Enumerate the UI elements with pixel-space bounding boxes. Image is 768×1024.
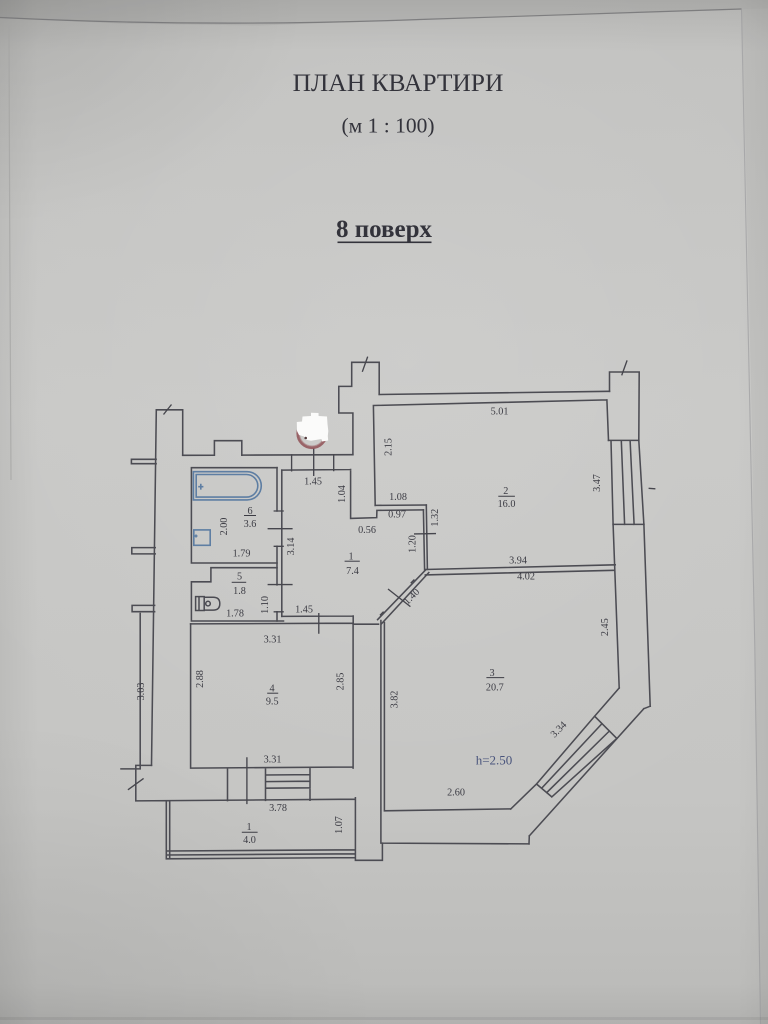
svg-text:1.79: 1.79 xyxy=(233,549,251,560)
svg-text:1.45: 1.45 xyxy=(304,477,322,488)
svg-text:2.15: 2.15 xyxy=(384,438,395,456)
svg-text:9.5: 9.5 xyxy=(266,697,279,708)
svg-text:3.47: 3.47 xyxy=(592,474,603,492)
svg-text:3.6: 3.6 xyxy=(244,519,257,530)
svg-text:h=2.50: h=2.50 xyxy=(476,753,513,768)
svg-text:20.7: 20.7 xyxy=(486,682,504,693)
svg-text:1.07: 1.07 xyxy=(334,816,345,834)
svg-text:1.04: 1.04 xyxy=(337,485,348,503)
svg-text:2.60: 2.60 xyxy=(447,788,465,799)
svg-text:ПЛАН КВАРТИРИ: ПЛАН КВАРТИРИ xyxy=(293,68,504,97)
svg-text:3.82: 3.82 xyxy=(390,691,401,709)
svg-text:3.34: 3.34 xyxy=(549,720,569,740)
svg-text:1: 1 xyxy=(348,551,353,562)
svg-text:(м 1 : 100): (м 1 : 100) xyxy=(341,114,434,138)
svg-text:1.10: 1.10 xyxy=(260,596,271,614)
svg-text:4.0: 4.0 xyxy=(243,835,256,846)
svg-text:2.88: 2.88 xyxy=(195,670,206,688)
svg-text:0.56: 0.56 xyxy=(358,525,376,536)
svg-text:5.01: 5.01 xyxy=(491,407,509,418)
svg-text:16.0: 16.0 xyxy=(498,499,516,510)
svg-text:5: 5 xyxy=(237,572,242,583)
svg-text:0.97: 0.97 xyxy=(388,510,406,521)
svg-text:4.02: 4.02 xyxy=(517,572,535,583)
svg-text:1.45: 1.45 xyxy=(295,605,313,616)
svg-text:2.00: 2.00 xyxy=(219,518,230,536)
svg-text:3.78: 3.78 xyxy=(269,803,287,814)
svg-text:1.78: 1.78 xyxy=(226,609,244,620)
svg-text:1.08: 1.08 xyxy=(389,492,407,503)
svg-text:3.31: 3.31 xyxy=(264,635,282,646)
svg-text:1.40: 1.40 xyxy=(402,587,422,607)
svg-text:2.45: 2.45 xyxy=(600,618,611,636)
svg-text:3.03: 3.03 xyxy=(136,683,147,701)
svg-text:2: 2 xyxy=(503,486,508,497)
svg-text:3.94: 3.94 xyxy=(509,556,527,567)
svg-text:1: 1 xyxy=(246,822,251,833)
svg-text:3.31: 3.31 xyxy=(264,755,282,766)
svg-text:1.20: 1.20 xyxy=(408,535,419,553)
svg-text:7.4: 7.4 xyxy=(346,566,359,577)
svg-text:1.32: 1.32 xyxy=(430,509,441,527)
svg-text:3.14: 3.14 xyxy=(286,538,297,556)
svg-text:2.85: 2.85 xyxy=(336,673,347,691)
svg-text:1.8: 1.8 xyxy=(233,586,246,597)
svg-text:8 поверх: 8 поверх xyxy=(336,216,433,243)
